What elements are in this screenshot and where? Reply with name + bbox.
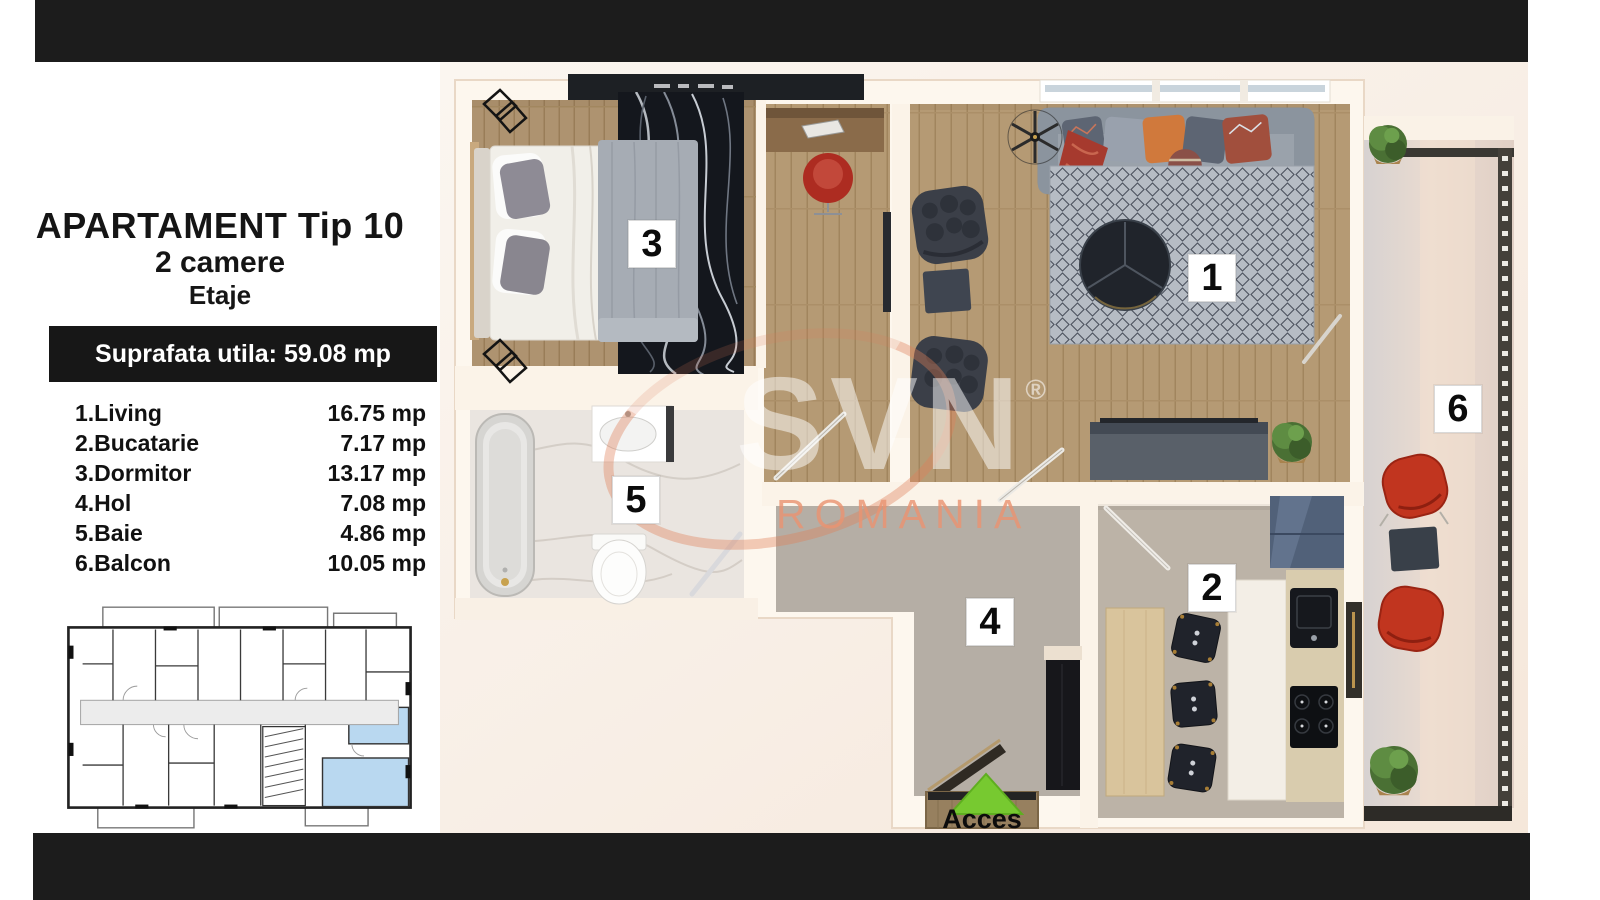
top-black-bar [35, 0, 1528, 62]
room-name: 1.Living [75, 398, 162, 428]
flyer-page: APARTAMENT Tip 10 2 camere Etaje Suprafa… [0, 0, 1600, 900]
list-item: 3.Dormitor 13.17 mp [0, 458, 440, 488]
room-marker-living: 1 [1188, 254, 1236, 302]
room-area: 16.75 mp [328, 398, 426, 428]
bottom-black-bar [33, 833, 1530, 900]
room-marker-hall: 4 [966, 598, 1014, 646]
room-name: 4.Hol [75, 488, 131, 518]
room-marker-balcony: 6 [1434, 385, 1482, 433]
access-entrance-label: Acces [918, 806, 1046, 833]
room-name: 3.Dormitor [75, 458, 191, 488]
room-area: 7.08 mp [340, 488, 426, 518]
page-title: APARTAMENT Tip 10 [0, 208, 440, 244]
info-panel: APARTAMENT Tip 10 2 camere Etaje Suprafa… [0, 62, 440, 833]
list-item: 4.Hol 7.08 mp [0, 488, 440, 518]
room-area: 10.05 mp [328, 548, 426, 578]
watermark-country: ROMANIA [776, 494, 1030, 535]
room-marker-bedroom: 3 [628, 220, 676, 268]
room-name: 2.Bucatarie [75, 428, 199, 458]
list-item: 1.Living 16.75 mp [0, 398, 440, 428]
apartment-rooms-subtitle: 2 camere [0, 248, 440, 278]
list-item: 6.Balcon 10.05 mp [0, 548, 440, 578]
room-name: 6.Balcon [75, 548, 171, 578]
registered-mark: ® [1025, 374, 1046, 405]
room-marker-bath: 5 [612, 476, 660, 524]
room-area: 4.86 mp [340, 518, 426, 548]
list-item: 5.Baie 4.86 mp [0, 518, 440, 548]
list-item: 2.Bucatarie 7.17 mp [0, 428, 440, 458]
room-area: 7.17 mp [340, 428, 426, 458]
room-marker-kitchen: 2 [1188, 564, 1236, 612]
room-name: 5.Baie [75, 518, 143, 548]
building-plan-thumbnail [62, 593, 417, 841]
floor-level-label: Etaje [0, 282, 440, 308]
watermark-brand: SVN® [736, 358, 1046, 490]
room-area: 13.17 mp [328, 458, 426, 488]
usable-area-banner: Suprafata utila: 59.08 mp [49, 326, 437, 382]
room-area-list: 1.Living 16.75 mp 2.Bucatarie 7.17 mp 3.… [0, 398, 440, 578]
floor-plan-render: SVN® ROMANIA 1 2 3 4 5 6 Acces [440, 62, 1528, 833]
